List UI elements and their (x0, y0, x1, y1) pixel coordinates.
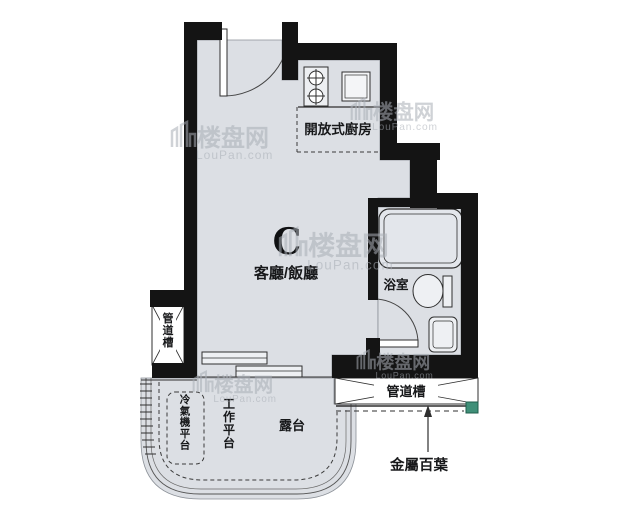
louver-end-cap (466, 402, 478, 413)
ac-platform-label: 冷氣機平台 (180, 393, 191, 451)
balcony-label: 露台 (279, 418, 305, 433)
pipe-duct-left-label: 管道槽 (163, 311, 174, 349)
svg-text:楼盘网: 楼盘网 (376, 352, 430, 373)
washbasin-icon (429, 317, 457, 352)
pipe-duct-bottom-label: 管道槽 (386, 384, 425, 399)
open-kitchen-label: 開放式廚房 (304, 121, 372, 137)
svg-text:LouPan.com: LouPan.com (372, 122, 438, 133)
floorplan-canvas: C 客廳/飯廳 開放式廚房 浴室 露台 工作平台 冷氣機平台 管道槽 管道槽 金… (0, 0, 620, 506)
svg-text:LouPan.com: LouPan.com (213, 394, 276, 405)
bathroom-label: 浴室 (383, 277, 409, 292)
stove-icon (304, 67, 328, 106)
svg-text:楼盘网: 楼盘网 (308, 230, 389, 261)
metal-louver-label: 金屬百葉 (389, 456, 448, 474)
svg-text:楼盘网: 楼盘网 (214, 373, 273, 396)
svg-text:楼盘网: 楼盘网 (373, 100, 434, 124)
louver-arrow (424, 405, 432, 452)
svg-text:LouPan.com: LouPan.com (376, 370, 434, 380)
svg-text:LouPan.com: LouPan.com (307, 258, 394, 273)
floorplan-drawing: C 客廳/飯廳 開放式廚房 浴室 露台 工作平台 冷氣機平台 管道槽 管道槽 金… (0, 0, 620, 506)
svg-text:LouPan.com: LouPan.com (196, 148, 273, 162)
toilet-icon (413, 275, 452, 308)
kitchen-sink-icon (342, 72, 370, 101)
